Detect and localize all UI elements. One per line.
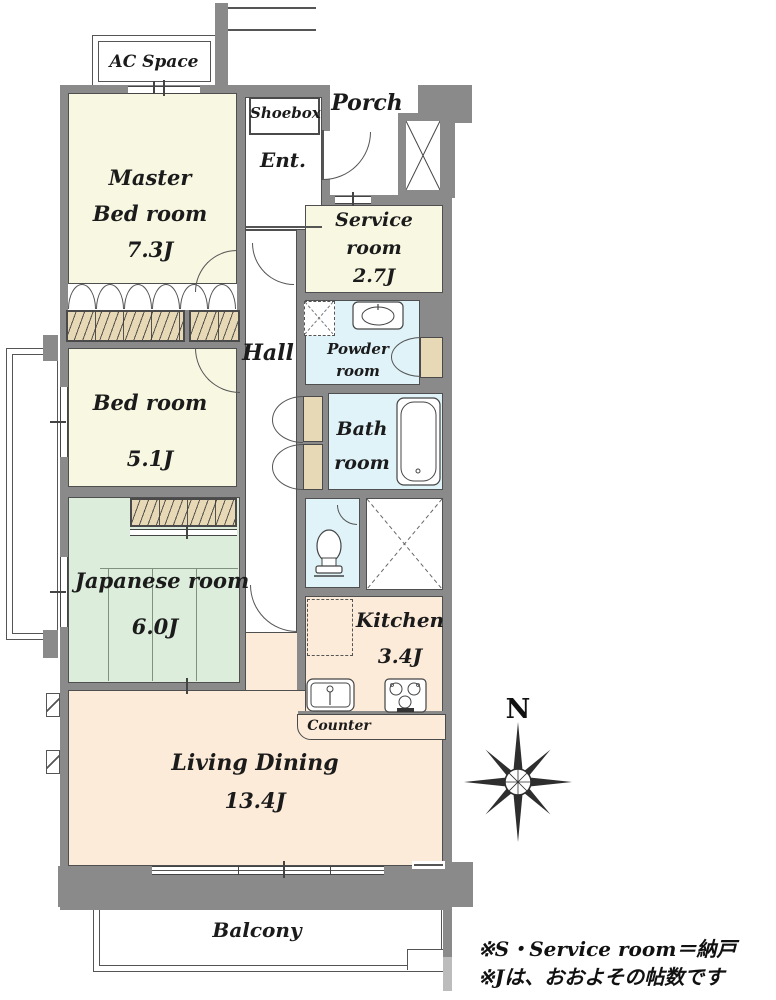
living-dining-area: 13.4J <box>155 788 355 813</box>
legend-line-1: ※S・Service room＝納戸 <box>478 933 736 962</box>
pipe-shaft <box>406 121 440 190</box>
window-mid-line <box>152 870 384 871</box>
shutter-box <box>46 693 60 717</box>
bedroom-area: 5.1J <box>80 446 220 471</box>
japanese-room-area: 6.0J <box>75 614 235 639</box>
wall-pad <box>58 866 108 907</box>
closet <box>189 310 240 342</box>
window-tick <box>283 861 285 878</box>
closet-panel <box>420 337 443 378</box>
closet-panel <box>303 444 323 490</box>
window-tick <box>352 192 354 206</box>
room-name-line: Bath <box>328 412 396 446</box>
closet-japanese <box>130 498 237 527</box>
closet-panel <box>303 396 323 442</box>
toilet-icon <box>309 526 349 582</box>
wall <box>448 121 455 198</box>
shoebox-label: Shoebox <box>250 104 320 122</box>
balcony-step <box>407 949 447 970</box>
window-tick <box>50 591 66 593</box>
room-name-line: room <box>305 360 411 382</box>
floor-plan: AC Space Balcony <box>0 0 776 1000</box>
bedroom-label: Bed room <box>80 390 220 415</box>
kitchen-label: Kitchen <box>355 608 445 632</box>
stove-icon <box>384 678 427 714</box>
window-tick <box>163 80 165 96</box>
room-area: 2.7J <box>305 262 443 290</box>
side-balcony <box>6 348 58 640</box>
window-divider <box>330 866 331 875</box>
kitchen-sink-icon <box>306 678 355 712</box>
powder-room-label: Powder room <box>305 338 411 382</box>
compass: N <box>455 694 581 844</box>
wall-strip-light <box>443 957 452 991</box>
hall-ld-passage <box>245 633 297 690</box>
master-bedroom-label: Master Bed room 7.3J <box>80 160 220 268</box>
bathtub-icon <box>396 397 441 486</box>
storage-space <box>366 498 443 590</box>
room-name-line: Service <box>305 206 443 234</box>
room-name-line: Powder <box>305 338 411 360</box>
closet <box>66 310 185 342</box>
sliding-door-tick <box>186 678 188 694</box>
japanese-room-label: Japanese room <box>75 568 235 593</box>
compass-rose-icon <box>456 720 580 844</box>
room-name-line: room <box>328 446 396 480</box>
room-name-line: Master <box>80 160 220 196</box>
ac-space-label: AC Space <box>94 52 214 72</box>
ac-tick <box>153 81 155 94</box>
window-divider <box>238 866 239 875</box>
hall-label: Hall <box>238 340 298 366</box>
powder-sink-icon <box>352 301 404 330</box>
balcony-label: Balcony <box>192 918 322 942</box>
wall-hatch-line <box>414 864 443 866</box>
wall-line <box>228 29 316 31</box>
fridge-space-icon <box>307 599 353 656</box>
service-room-label: Service room 2.7J <box>305 206 443 290</box>
washer-space-icon <box>304 301 335 336</box>
counter-label: Counter <box>303 718 375 734</box>
kitchen-area: 3.4J <box>355 644 445 668</box>
shutter-box <box>46 750 60 774</box>
bath-room-label: Bath room <box>328 412 396 480</box>
entrance-door-arc <box>323 132 371 180</box>
window-tick <box>50 421 66 423</box>
room-name-line: Bed room <box>80 196 220 232</box>
wall-tab <box>43 335 58 361</box>
porch-label: Porch <box>327 90 407 116</box>
sliding-door-tick <box>186 525 188 539</box>
wall-strip <box>443 905 452 957</box>
wall <box>215 3 228 87</box>
wall-tab <box>43 630 58 658</box>
room-area: 7.3J <box>80 232 220 268</box>
entrance-label: Ent. <box>245 148 321 172</box>
living-dining-label: Living Dining <box>155 750 355 776</box>
room-name-line: room <box>305 234 443 262</box>
legend-line-2: ※Jは、おおよその帖数です <box>478 961 724 990</box>
wall-line <box>228 7 316 9</box>
closet-sliding-track <box>130 529 237 536</box>
